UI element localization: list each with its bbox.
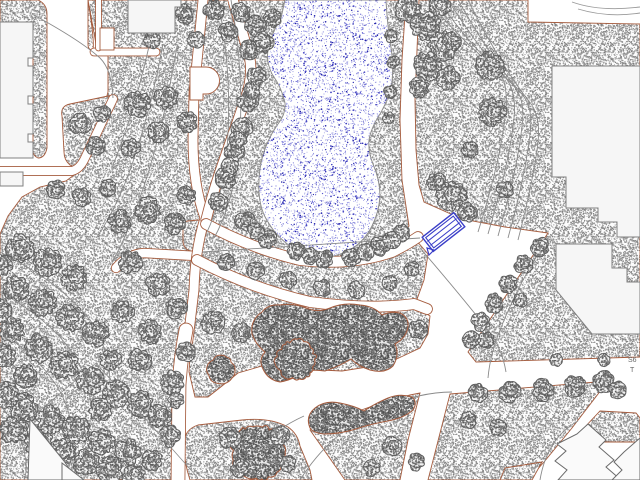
svg-text:S6: S6 [628,357,637,364]
svg-text:T: T [630,367,635,374]
